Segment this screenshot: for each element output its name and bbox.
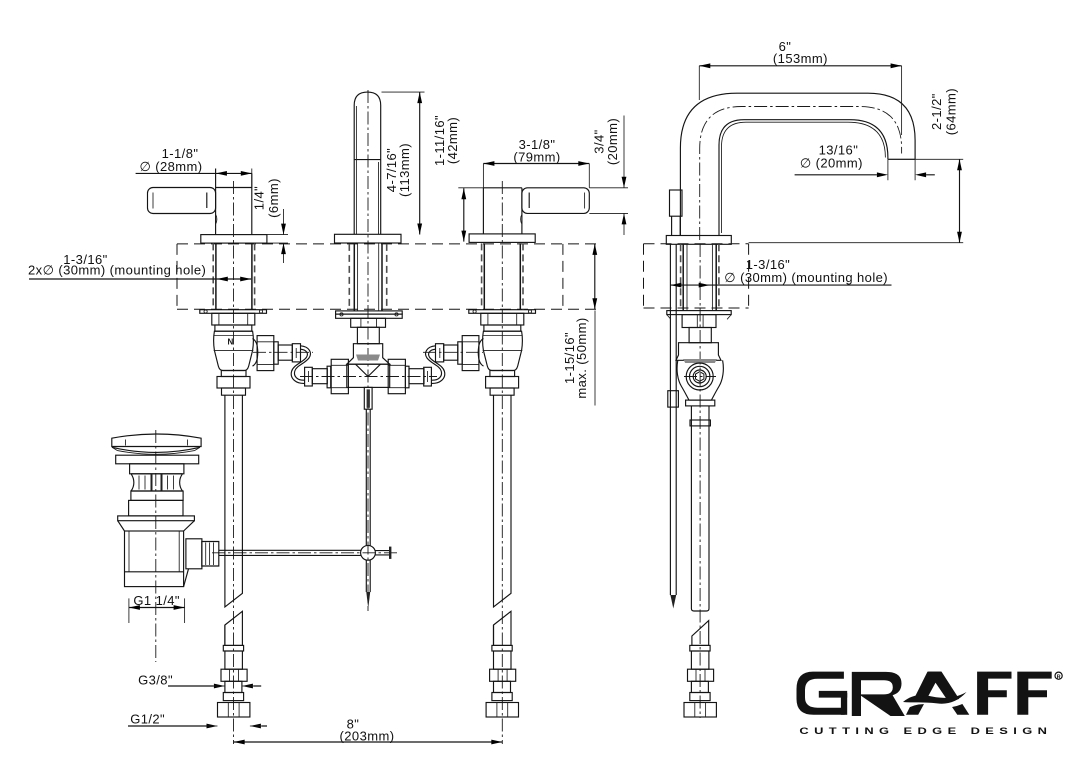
svg-text:(64mm): (64mm) <box>944 88 959 135</box>
svg-text:∅ (28mm): ∅ (28mm) <box>139 159 202 174</box>
svg-text:G3/8": G3/8" <box>138 673 173 688</box>
svg-text:(203mm): (203mm) <box>340 729 395 744</box>
svg-text:N: N <box>228 338 234 347</box>
svg-text:G1/2": G1/2" <box>130 711 165 726</box>
svg-text:∅ (20mm): ∅ (20mm) <box>800 156 863 171</box>
svg-text:G1 1/4": G1 1/4" <box>133 593 180 608</box>
svg-text:∅ (30mm) (mounting hole): ∅ (30mm) (mounting hole) <box>724 270 888 285</box>
svg-text:(153mm): (153mm) <box>773 51 828 66</box>
svg-text:CUTTING EDGE DESIGN: CUTTING EDGE DESIGN <box>799 726 1052 737</box>
svg-text:1/4": 1/4" <box>252 186 267 210</box>
svg-text:max. (50mm): max. (50mm) <box>574 317 589 398</box>
svg-text:2x∅ (30mm) (mounting hole): 2x∅ (30mm) (mounting hole) <box>28 263 206 278</box>
svg-text:R: R <box>1057 674 1061 680</box>
svg-text:(6mm): (6mm) <box>266 178 281 218</box>
svg-text:(79mm): (79mm) <box>513 150 560 165</box>
svg-text:(20mm): (20mm) <box>605 118 620 165</box>
svg-text:2-1/2": 2-1/2" <box>929 93 944 130</box>
svg-text:(42mm): (42mm) <box>445 117 460 164</box>
svg-text:(113mm): (113mm) <box>397 143 412 197</box>
